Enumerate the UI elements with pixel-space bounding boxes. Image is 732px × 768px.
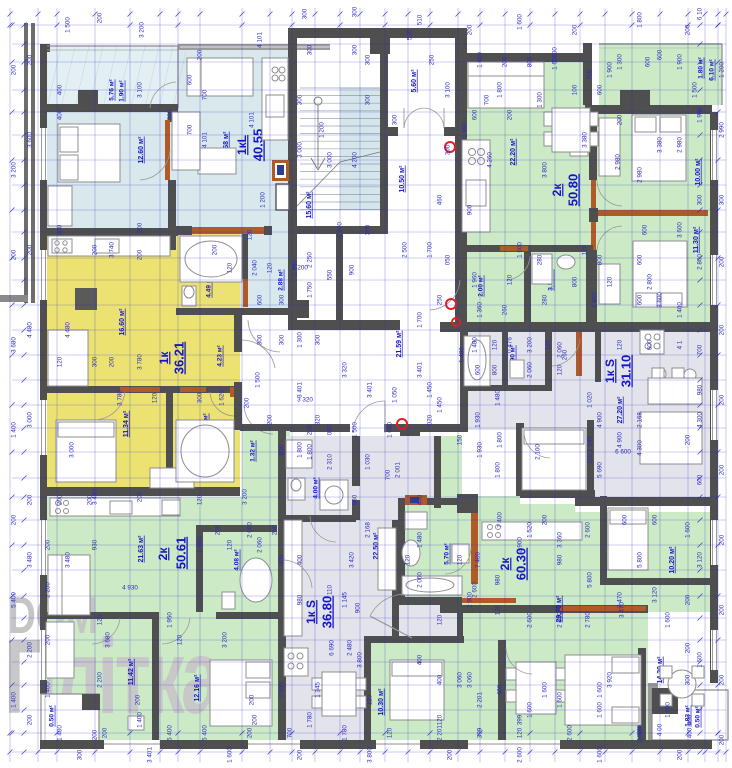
svg-text:110 1 145: 110 1 145 xyxy=(587,436,594,464)
svg-text:5 400: 5 400 xyxy=(11,592,18,608)
svg-text:150: 150 xyxy=(457,434,464,445)
svg-text:200: 200 xyxy=(92,729,99,740)
svg-text:1 300: 1 300 xyxy=(537,92,544,108)
svg-text:120: 120 xyxy=(437,714,444,725)
svg-text:3 380: 3 380 xyxy=(582,132,589,148)
svg-text:300: 300 xyxy=(297,94,304,105)
svg-text:36.21: 36.21 xyxy=(171,342,186,375)
svg-text:3 000: 3 000 xyxy=(297,142,304,158)
svg-text:3 060: 3 060 xyxy=(467,672,474,688)
svg-text:1 600: 1 600 xyxy=(597,702,604,718)
svg-text:1 960: 1 960 xyxy=(472,272,479,288)
svg-text:2.00 м²: 2.00 м² xyxy=(478,274,485,296)
svg-text:200: 200 xyxy=(297,749,304,760)
svg-text:1 480: 1 480 xyxy=(472,337,479,353)
svg-text:1 780: 1 780 xyxy=(307,712,314,728)
svg-text:1 050: 1 050 xyxy=(392,387,399,403)
svg-text:200: 200 xyxy=(247,727,254,738)
svg-text:2 040: 2 040 xyxy=(252,260,259,276)
svg-text:200: 200 xyxy=(307,424,314,435)
svg-text:200: 200 xyxy=(102,727,109,738)
svg-text:4 101: 4 101 xyxy=(249,112,256,128)
svg-text:1 990: 1 990 xyxy=(462,122,469,138)
svg-text:200: 200 xyxy=(572,24,579,35)
svg-text:5.70 м²: 5.70 м² xyxy=(444,542,451,564)
svg-text:22.20 м²: 22.20 м² xyxy=(510,138,517,166)
svg-text:1 200: 1 200 xyxy=(260,192,267,208)
svg-text:120: 120 xyxy=(457,554,464,565)
svg-text:1 800: 1 800 xyxy=(495,462,502,478)
svg-text:5 800: 5 800 xyxy=(587,572,594,588)
svg-text:1к: 1к xyxy=(157,351,171,365)
svg-text:300: 300 xyxy=(352,44,359,55)
svg-text:120: 120 xyxy=(405,554,412,565)
svg-text:200: 200 xyxy=(27,494,34,505)
svg-text:2к: 2к xyxy=(156,547,170,561)
svg-text:800: 800 xyxy=(527,56,534,67)
svg-text:3 680: 3 680 xyxy=(105,632,112,648)
svg-text:3 680: 3 680 xyxy=(11,337,18,353)
svg-text:7 400: 7 400 xyxy=(497,512,504,528)
svg-text:400: 400 xyxy=(687,727,694,738)
svg-text:4.08 м²: 4.08 м² xyxy=(234,548,241,570)
svg-text:200: 200 xyxy=(215,524,222,535)
svg-text:600: 600 xyxy=(697,474,704,485)
svg-text:2 780: 2 780 xyxy=(585,612,592,628)
svg-text:300: 300 xyxy=(197,392,204,403)
svg-text:120: 120 xyxy=(607,276,614,287)
svg-text:980: 980 xyxy=(352,494,359,505)
svg-text:2 600: 2 600 xyxy=(472,582,479,598)
svg-text:3 420: 3 420 xyxy=(349,552,356,568)
svg-text:4 00: 4 00 xyxy=(657,723,664,736)
svg-text:120: 120 xyxy=(582,244,589,255)
svg-text:1 500: 1 500 xyxy=(65,17,72,33)
svg-text:2 060: 2 060 xyxy=(527,362,534,378)
svg-text:460: 460 xyxy=(437,194,444,205)
svg-text:3 380: 3 380 xyxy=(657,137,664,153)
svg-text:1 600: 1 600 xyxy=(665,702,672,718)
svg-text:280: 280 xyxy=(542,294,549,305)
svg-text:200: 200 xyxy=(719,256,726,267)
svg-text:200: 200 xyxy=(719,324,726,335)
svg-text:1 800: 1 800 xyxy=(592,292,599,308)
svg-text:300: 300 xyxy=(365,224,372,235)
svg-text:3 100: 3 100 xyxy=(137,82,144,98)
svg-text:3 600: 3 600 xyxy=(657,292,664,308)
svg-text:1 930: 1 930 xyxy=(477,442,484,458)
svg-text:Плітка: Плітка xyxy=(4,618,223,736)
svg-text:550: 550 xyxy=(327,269,334,280)
svg-text:200: 200 xyxy=(11,514,18,525)
svg-text:200: 200 xyxy=(167,109,174,120)
svg-text:1 980: 1 980 xyxy=(697,107,704,123)
svg-text:400: 400 xyxy=(417,654,424,665)
svg-text:120: 120 xyxy=(437,614,444,625)
svg-text:900: 900 xyxy=(349,264,356,275)
svg-text:110: 110 xyxy=(327,584,334,595)
svg-text:300: 300 xyxy=(392,114,399,125)
svg-text:1 400: 1 400 xyxy=(137,712,144,728)
svg-text:120: 120 xyxy=(197,494,204,505)
svg-text:1 600: 1 600 xyxy=(227,747,234,763)
svg-text:4 260: 4 260 xyxy=(487,152,494,168)
svg-text:200: 200 xyxy=(685,434,692,445)
svg-text:1 800: 1 800 xyxy=(497,82,504,98)
svg-text:3 780: 3 780 xyxy=(137,354,144,370)
svg-text:1 345: 1 345 xyxy=(315,682,322,698)
svg-text:600: 600 xyxy=(472,109,479,120)
svg-text:100: 100 xyxy=(572,84,579,95)
svg-text:900: 900 xyxy=(355,602,362,613)
svg-text:2 060: 2 060 xyxy=(247,522,254,538)
svg-text:200: 200 xyxy=(252,714,259,725)
svg-text:3 470: 3 470 xyxy=(617,592,624,608)
svg-text:3 320: 3 320 xyxy=(342,362,349,378)
svg-text:600: 600 xyxy=(257,294,264,305)
svg-text:1 500: 1 500 xyxy=(692,82,699,98)
svg-text:3 920: 3 920 xyxy=(607,672,614,688)
svg-text:300: 300 xyxy=(279,334,286,345)
svg-text:980: 980 xyxy=(297,594,304,605)
svg-text:1 450: 1 450 xyxy=(427,382,434,398)
svg-text:200: 200 xyxy=(137,491,144,502)
svg-text:600: 600 xyxy=(647,339,654,350)
svg-text:450: 450 xyxy=(417,494,424,505)
svg-text:200: 200 xyxy=(617,114,624,125)
svg-text:50.80: 50.80 xyxy=(565,174,580,207)
svg-text:2 680: 2 680 xyxy=(557,612,564,628)
svg-text:11.34 м²: 11.34 м² xyxy=(123,410,130,437)
svg-text:300: 300 xyxy=(352,6,359,17)
svg-text:1 930: 1 930 xyxy=(475,412,482,428)
svg-text:260: 260 xyxy=(502,304,509,315)
svg-text:5 690: 5 690 xyxy=(597,462,604,478)
svg-text:700: 700 xyxy=(202,89,209,100)
svg-text:2 980: 2 980 xyxy=(615,154,622,170)
svg-text:200: 200 xyxy=(92,244,99,255)
svg-text:2к: 2к xyxy=(550,183,564,197)
svg-text:120: 120 xyxy=(557,364,564,375)
svg-text:120: 120 xyxy=(517,727,524,738)
svg-text:1 300: 1 300 xyxy=(297,332,304,348)
svg-text:800: 800 xyxy=(492,364,499,375)
svg-text:1 950: 1 950 xyxy=(167,612,174,628)
svg-text:6 690: 6 690 xyxy=(329,640,336,656)
svg-text:1 800: 1 800 xyxy=(497,432,504,448)
svg-text:4 300: 4 300 xyxy=(637,440,644,456)
svg-text:3 800: 3 800 xyxy=(357,652,364,668)
svg-text:250: 250 xyxy=(429,54,436,65)
svg-text:1 600: 1 600 xyxy=(597,682,604,698)
svg-text:21.59 м²: 21.59 м² xyxy=(396,330,403,358)
svg-text:5 400: 5 400 xyxy=(167,725,174,741)
svg-text:1 450: 1 450 xyxy=(437,397,444,413)
svg-text:050: 050 xyxy=(445,254,452,265)
svg-text:1 600: 1 600 xyxy=(517,242,524,258)
svg-text:2 200: 2 200 xyxy=(97,672,104,688)
svg-text:250: 250 xyxy=(437,294,444,305)
svg-text:3 060: 3 060 xyxy=(457,672,464,688)
svg-text:200: 200 xyxy=(447,749,454,760)
svg-text:1 600: 1 600 xyxy=(542,682,549,698)
svg-text:1 950: 1 950 xyxy=(197,537,204,553)
svg-text:3 480: 3 480 xyxy=(65,552,72,568)
svg-text:4 900: 4 900 xyxy=(597,412,604,428)
svg-text:1 620: 1 620 xyxy=(219,390,226,406)
svg-text:200: 200 xyxy=(244,397,251,408)
svg-text:700: 700 xyxy=(587,69,594,80)
svg-text:10.20 м²: 10.20 м² xyxy=(669,546,676,574)
svg-text:4 930: 4 930 xyxy=(122,585,138,592)
svg-text:980: 980 xyxy=(697,384,704,395)
svg-text:50.61: 50.61 xyxy=(173,537,188,570)
svg-text:1 600: 1 600 xyxy=(597,747,604,763)
svg-text:1 600: 1 600 xyxy=(477,52,484,68)
svg-text:1 030: 1 030 xyxy=(387,422,394,438)
svg-text:120: 120 xyxy=(177,634,184,645)
svg-text:400: 400 xyxy=(57,109,64,120)
svg-text:2 900: 2 900 xyxy=(517,537,524,553)
svg-text:120: 120 xyxy=(545,339,552,350)
svg-text:4 101: 4 101 xyxy=(257,32,264,48)
svg-text:200: 200 xyxy=(27,54,34,65)
svg-text:4 480: 4 480 xyxy=(65,322,72,338)
svg-text:1 030: 1 030 xyxy=(365,454,372,470)
svg-text:21.63 м²: 21.63 м² xyxy=(138,535,145,563)
svg-text:2 980: 2 980 xyxy=(637,167,644,183)
svg-text:700: 700 xyxy=(484,94,491,105)
svg-text:700: 700 xyxy=(385,469,392,480)
svg-text:400: 400 xyxy=(497,684,504,695)
svg-text:3 600: 3 600 xyxy=(27,132,34,148)
svg-text:200: 200 xyxy=(677,749,684,760)
svg-text:3 401: 3 401 xyxy=(297,382,304,398)
svg-text:27.20 м²: 27.20 м² xyxy=(617,396,624,424)
svg-text:1 800: 1 800 xyxy=(297,442,304,458)
svg-text:200: 200 xyxy=(685,642,692,653)
svg-text:3 000: 3 000 xyxy=(327,152,334,168)
svg-text:700: 700 xyxy=(697,344,704,355)
svg-text:600: 600 xyxy=(652,514,659,525)
svg-text:2 060: 2 060 xyxy=(417,572,424,588)
svg-text:16.60 м²: 16.60 м² xyxy=(119,308,126,336)
svg-text:3 360: 3 360 xyxy=(557,532,564,548)
svg-text:7 400: 7 400 xyxy=(475,552,482,568)
svg-text:3 120: 3 120 xyxy=(697,552,704,568)
svg-text:300: 300 xyxy=(365,94,372,105)
svg-text:320: 320 xyxy=(315,414,322,425)
svg-text:1 400: 1 400 xyxy=(677,302,684,318)
svg-text:1 700: 1 700 xyxy=(417,312,424,328)
svg-text:200: 200 xyxy=(542,514,549,525)
svg-text:200: 200 xyxy=(249,694,256,705)
svg-text:3 740: 3 740 xyxy=(109,242,116,258)
svg-text:2 600: 2 600 xyxy=(585,522,592,538)
svg-text:200: 200 xyxy=(137,249,144,260)
svg-text:15.60 м²: 15.60 м² xyxy=(306,191,313,219)
svg-text:3 100: 3 100 xyxy=(445,82,452,98)
svg-text:2 800: 2 800 xyxy=(647,274,654,290)
svg-text:1.32 м²: 1.32 м² xyxy=(250,439,257,461)
svg-text:200: 200 xyxy=(719,604,726,615)
svg-text:3 000: 3 000 xyxy=(27,412,34,428)
svg-text:1 500: 1 500 xyxy=(352,422,359,438)
svg-text:31.10: 31.10 xyxy=(618,355,633,388)
svg-text:930: 930 xyxy=(92,539,99,550)
svg-text:200: 200 xyxy=(57,494,64,505)
svg-text:3 480: 3 480 xyxy=(27,552,34,568)
svg-text:3 200: 3 200 xyxy=(527,337,534,353)
svg-text:2 990: 2 990 xyxy=(719,122,726,138)
svg-text:1 480: 1 480 xyxy=(495,390,502,406)
svg-text:200: 200 xyxy=(719,394,726,405)
svg-text:2 001: 2 001 xyxy=(395,462,402,478)
svg-text:120: 120 xyxy=(267,262,274,273)
svg-text:2 600: 2 600 xyxy=(517,747,524,763)
svg-text:300: 300 xyxy=(685,674,692,685)
svg-text:300: 300 xyxy=(315,334,322,345)
svg-text:980: 980 xyxy=(557,554,564,565)
svg-text:2 600: 2 600 xyxy=(567,725,574,741)
svg-text:980: 980 xyxy=(495,574,502,585)
svg-text:2 480: 2 480 xyxy=(347,640,354,656)
svg-text:200: 200 xyxy=(719,734,726,745)
svg-text:120: 120 xyxy=(492,339,499,350)
svg-text:399: 399 xyxy=(477,727,484,738)
svg-text:300: 300 xyxy=(92,356,99,367)
svg-text:1 200: 1 200 xyxy=(337,222,344,238)
svg-text:1 600: 1 600 xyxy=(685,522,692,538)
svg-text:300: 300 xyxy=(257,334,264,345)
svg-text:10.30 м²: 10.30 м² xyxy=(378,688,385,716)
svg-text:200: 200 xyxy=(197,49,204,60)
svg-text:120: 120 xyxy=(247,229,254,240)
svg-text:300: 300 xyxy=(719,194,726,205)
svg-text:200: 200 xyxy=(11,64,18,75)
svg-text:1 600: 1 600 xyxy=(557,692,564,708)
svg-text:600: 600 xyxy=(657,49,664,60)
svg-text:4.00 м²: 4.00 м² xyxy=(313,476,320,498)
svg-text:0 690: 0 690 xyxy=(279,682,286,698)
svg-text:1к S: 1к S xyxy=(603,359,617,383)
svg-text:1 360: 1 360 xyxy=(477,302,484,318)
svg-text:120: 120 xyxy=(227,539,234,550)
svg-text:1 600: 1 600 xyxy=(527,702,534,718)
svg-text:2 200: 2 200 xyxy=(27,642,34,658)
svg-text:600: 600 xyxy=(597,84,604,95)
svg-text:200: 200 xyxy=(719,674,726,685)
svg-text:1 600: 1 600 xyxy=(552,54,559,70)
svg-text:280: 280 xyxy=(537,254,544,265)
svg-text:1 800: 1 800 xyxy=(307,444,314,460)
svg-text:200: 200 xyxy=(719,534,726,545)
svg-text:300: 300 xyxy=(445,144,452,155)
svg-text:3 401: 3 401 xyxy=(417,362,424,378)
svg-text:120: 120 xyxy=(97,614,104,625)
svg-text:4 900: 4 900 xyxy=(617,432,624,448)
svg-text:800: 800 xyxy=(572,276,579,287)
svg-text:2 201: 2 201 xyxy=(437,725,444,741)
svg-text:1 400: 1 400 xyxy=(57,725,64,741)
svg-text:5 800: 5 800 xyxy=(637,552,644,568)
svg-text:400: 400 xyxy=(279,554,286,565)
svg-text:200: 200 xyxy=(135,694,142,705)
svg-text:1 900: 1 900 xyxy=(677,54,684,70)
svg-text:200: 200 xyxy=(467,24,474,35)
svg-text:6 600: 6 600 xyxy=(615,449,631,456)
svg-text:3 200: 3 200 xyxy=(139,22,146,38)
svg-text:3 200: 3 200 xyxy=(11,162,18,178)
svg-text:120: 120 xyxy=(57,356,64,367)
svg-text:120: 120 xyxy=(617,339,624,350)
svg-text:2 100: 2 100 xyxy=(535,444,542,460)
svg-text:200: 200 xyxy=(57,224,64,235)
svg-text:3 320: 3 320 xyxy=(297,397,313,404)
svg-text:3 401: 3 401 xyxy=(367,382,374,398)
svg-text:120: 120 xyxy=(227,262,234,273)
svg-text:1 400: 1 400 xyxy=(45,682,52,698)
svg-text:300: 300 xyxy=(697,194,704,205)
svg-text:300: 300 xyxy=(279,294,286,305)
svg-text:2.88 м²: 2.88 м² xyxy=(278,268,285,290)
svg-text:1 800: 1 800 xyxy=(637,12,644,28)
svg-text:3 200: 3 200 xyxy=(222,632,229,648)
svg-text:200: 200 xyxy=(11,249,18,260)
svg-text:1 600: 1 600 xyxy=(665,612,672,628)
svg-text:1 600: 1 600 xyxy=(637,727,644,743)
svg-text:600: 600 xyxy=(187,74,194,85)
svg-text:200: 200 xyxy=(27,714,34,725)
svg-text:400: 400 xyxy=(297,554,304,565)
svg-text:1 020: 1 020 xyxy=(587,392,594,408)
svg-text:2 168: 2 168 xyxy=(365,522,372,538)
svg-text:4 101: 4 101 xyxy=(202,132,209,148)
svg-text:300: 300 xyxy=(77,749,84,760)
svg-text:200: 200 xyxy=(267,414,274,425)
svg-text:399: 399 xyxy=(517,714,524,725)
svg-text:080: 080 xyxy=(327,424,334,435)
svg-text:3 800: 3 800 xyxy=(367,747,374,763)
svg-text:700: 700 xyxy=(187,124,194,135)
svg-text:1 400: 1 400 xyxy=(11,692,18,708)
svg-text:600: 600 xyxy=(645,56,652,67)
svg-text:600: 600 xyxy=(475,364,482,375)
svg-text:10.50 м²: 10.50 м² xyxy=(399,165,406,193)
svg-text:5.60 м²: 5.60 м² xyxy=(411,69,418,93)
svg-text:3 800: 3 800 xyxy=(542,162,549,178)
svg-text:120: 120 xyxy=(495,604,502,615)
svg-text:1к S: 1к S xyxy=(304,600,318,624)
svg-text:1 600: 1 600 xyxy=(517,14,524,30)
svg-text:3 200: 3 200 xyxy=(242,489,249,505)
svg-text:200: 200 xyxy=(507,109,514,120)
svg-text:200: 200 xyxy=(97,12,104,23)
svg-text:1 400: 1 400 xyxy=(11,422,18,438)
svg-text:2 600: 2 600 xyxy=(527,612,534,628)
svg-text:2 500: 2 500 xyxy=(402,242,409,258)
svg-text:2 310: 2 310 xyxy=(327,454,334,470)
svg-text:5 400: 5 400 xyxy=(202,725,209,741)
svg-text:300: 300 xyxy=(365,54,372,65)
svg-text:1.90 м²: 1.90 м² xyxy=(119,79,126,101)
svg-text:1 520: 1 520 xyxy=(527,522,534,538)
svg-text:3 600: 3 600 xyxy=(677,222,684,238)
svg-text:2 800: 2 800 xyxy=(697,254,704,270)
svg-text:600: 600 xyxy=(637,294,644,305)
svg-text:0.50 м²: 0.50 м² xyxy=(49,704,56,726)
svg-text:200: 200 xyxy=(137,222,144,233)
